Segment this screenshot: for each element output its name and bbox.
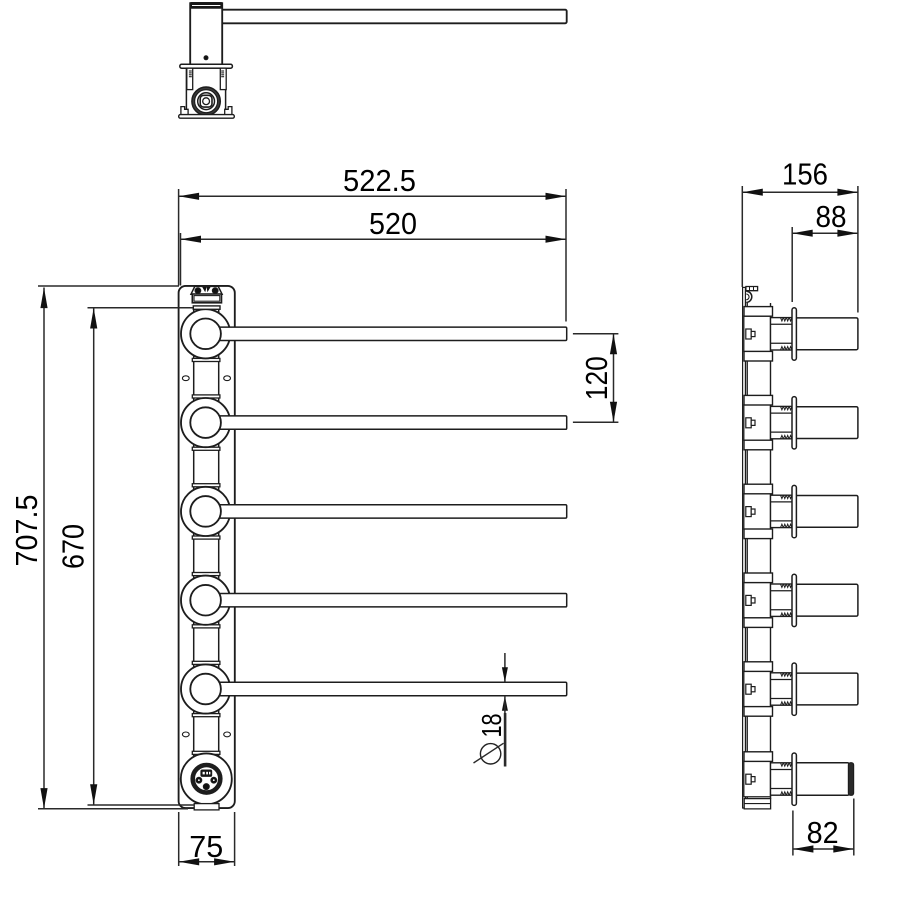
svg-text:707.5: 707.5 (9, 495, 44, 567)
svg-text:156: 156 (782, 156, 828, 191)
svg-text:75: 75 (189, 829, 223, 864)
svg-text:520: 520 (369, 206, 417, 241)
svg-text:88: 88 (816, 199, 847, 234)
svg-text:670: 670 (55, 524, 90, 569)
svg-text:82: 82 (807, 815, 839, 850)
svg-text:120: 120 (579, 356, 614, 400)
svg-text:18: 18 (476, 714, 507, 738)
svg-text:522.5: 522.5 (343, 163, 416, 198)
